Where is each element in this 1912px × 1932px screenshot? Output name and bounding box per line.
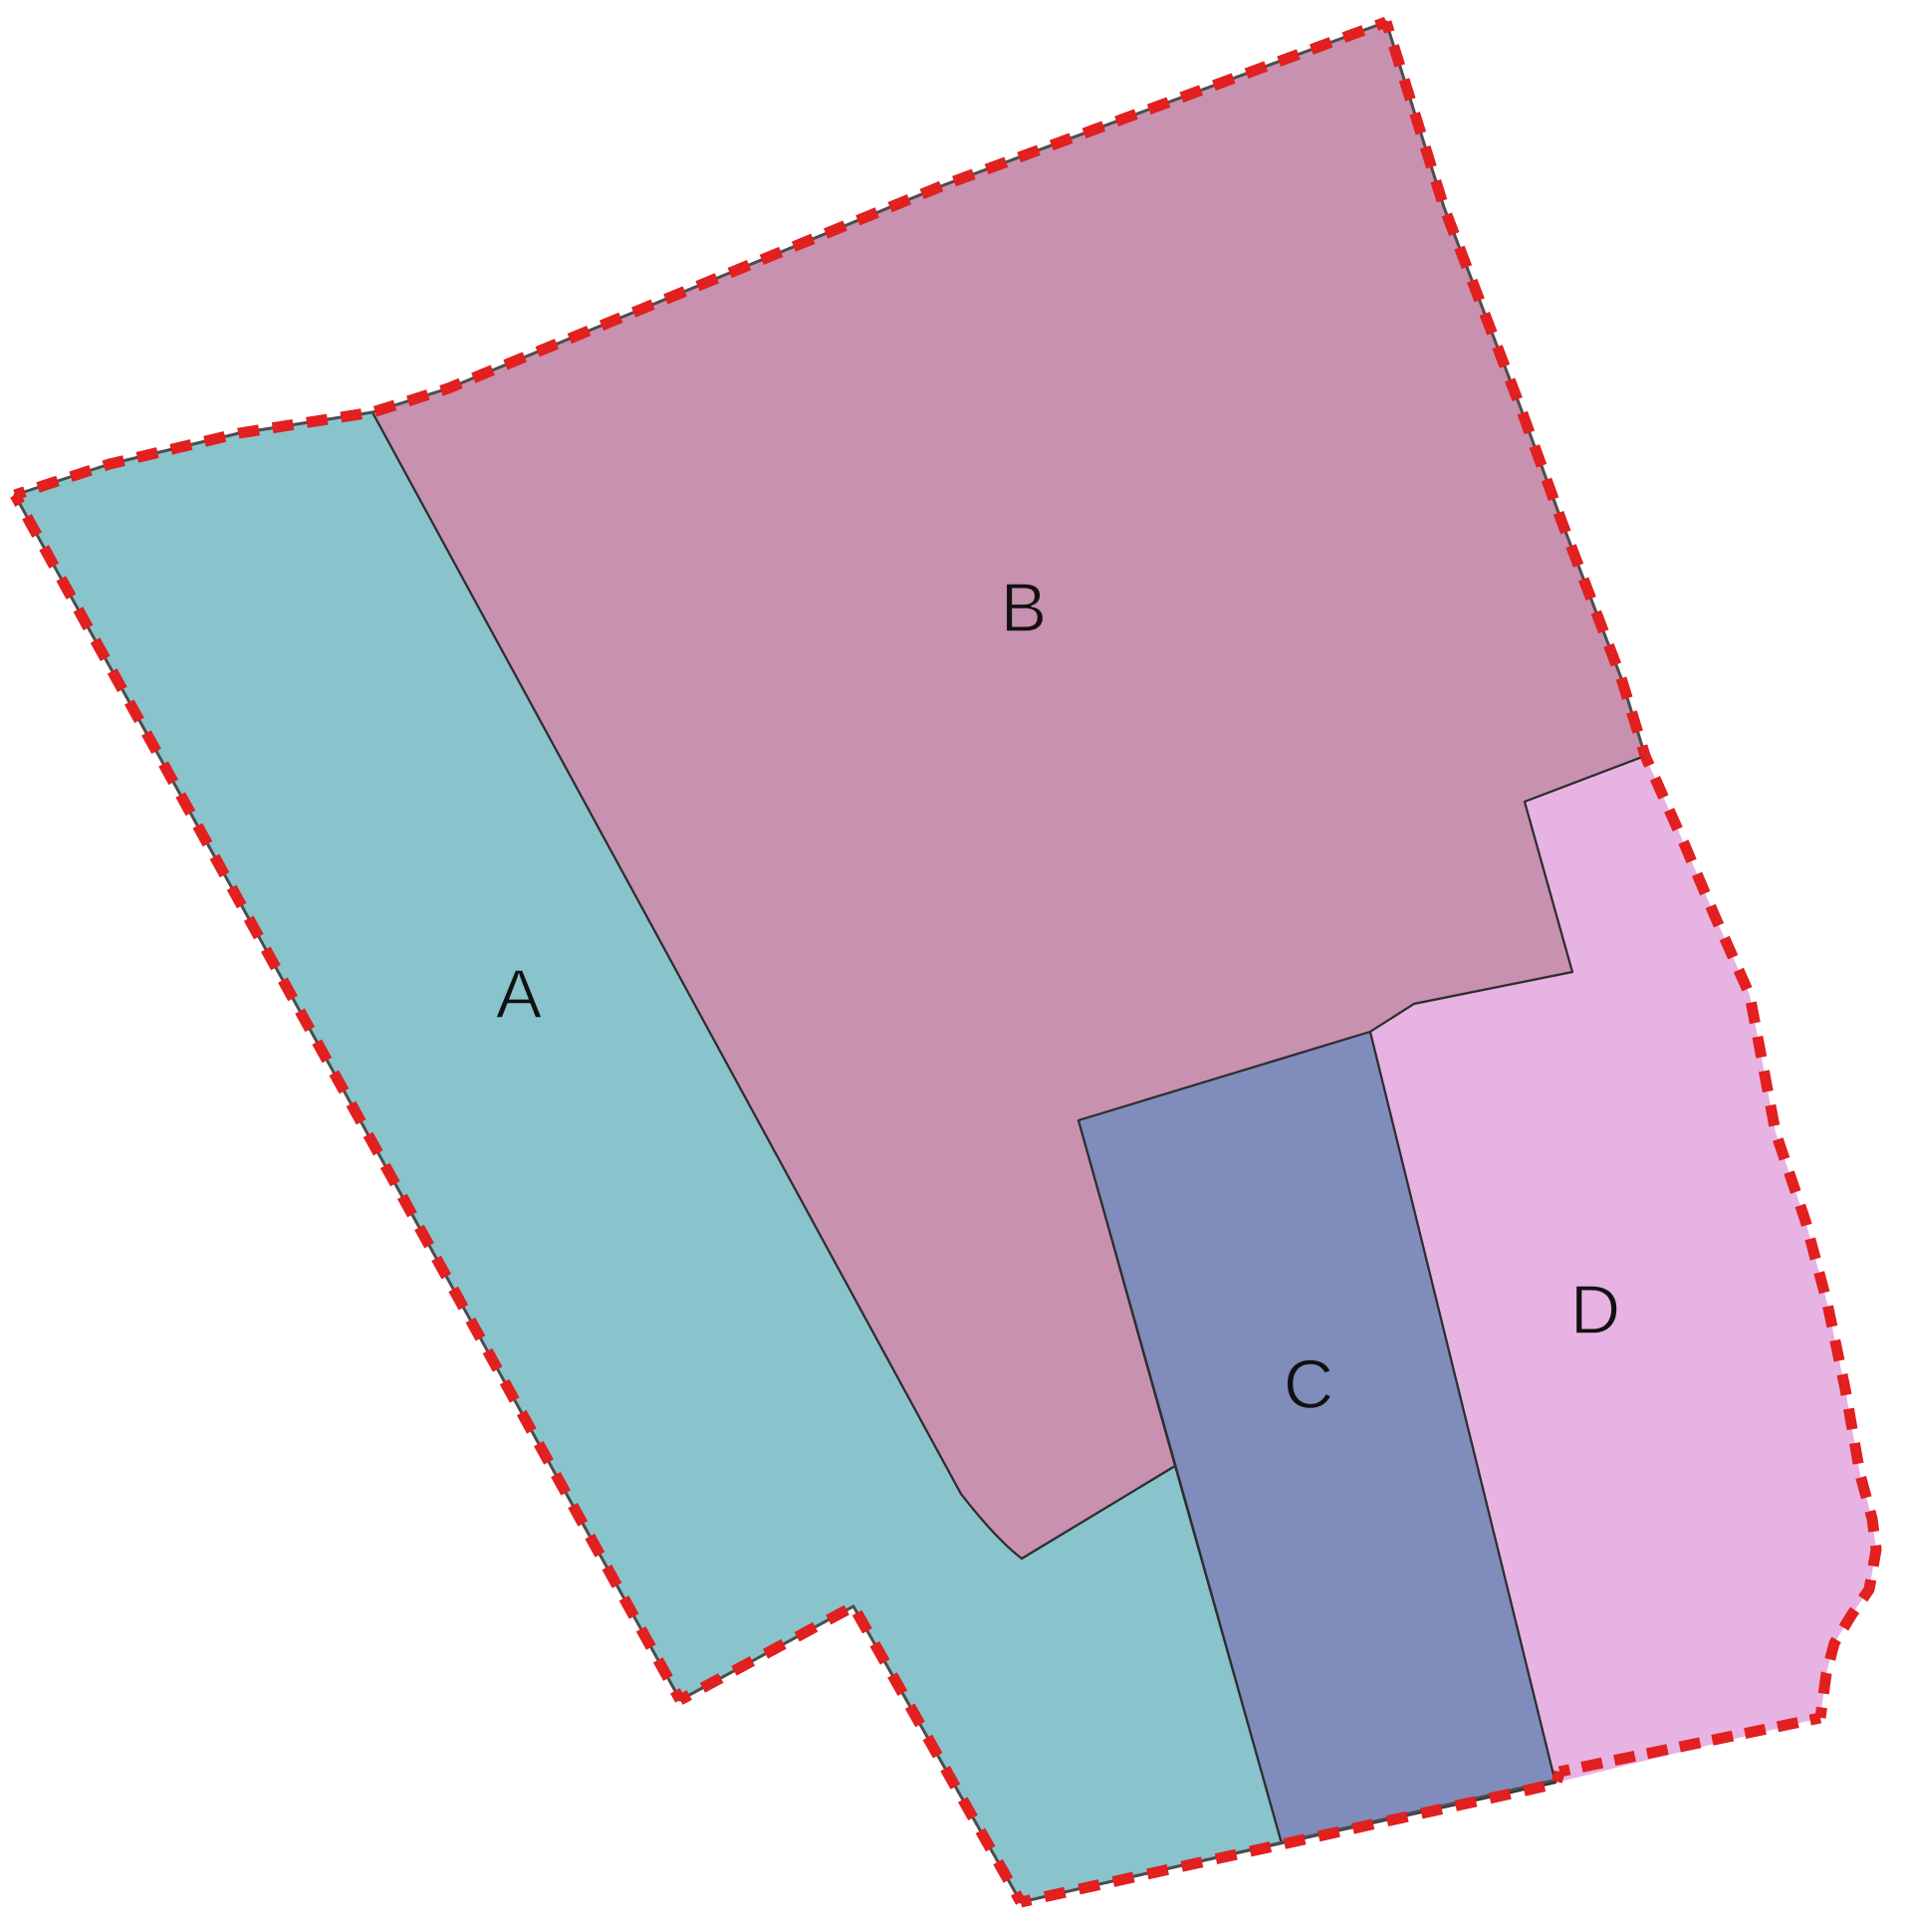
svg-text:A: A <box>496 955 543 1033</box>
svg-text:C: C <box>1284 1345 1334 1423</box>
svg-text:D: D <box>1570 1271 1621 1348</box>
svg-text:B: B <box>1001 569 1048 646</box>
